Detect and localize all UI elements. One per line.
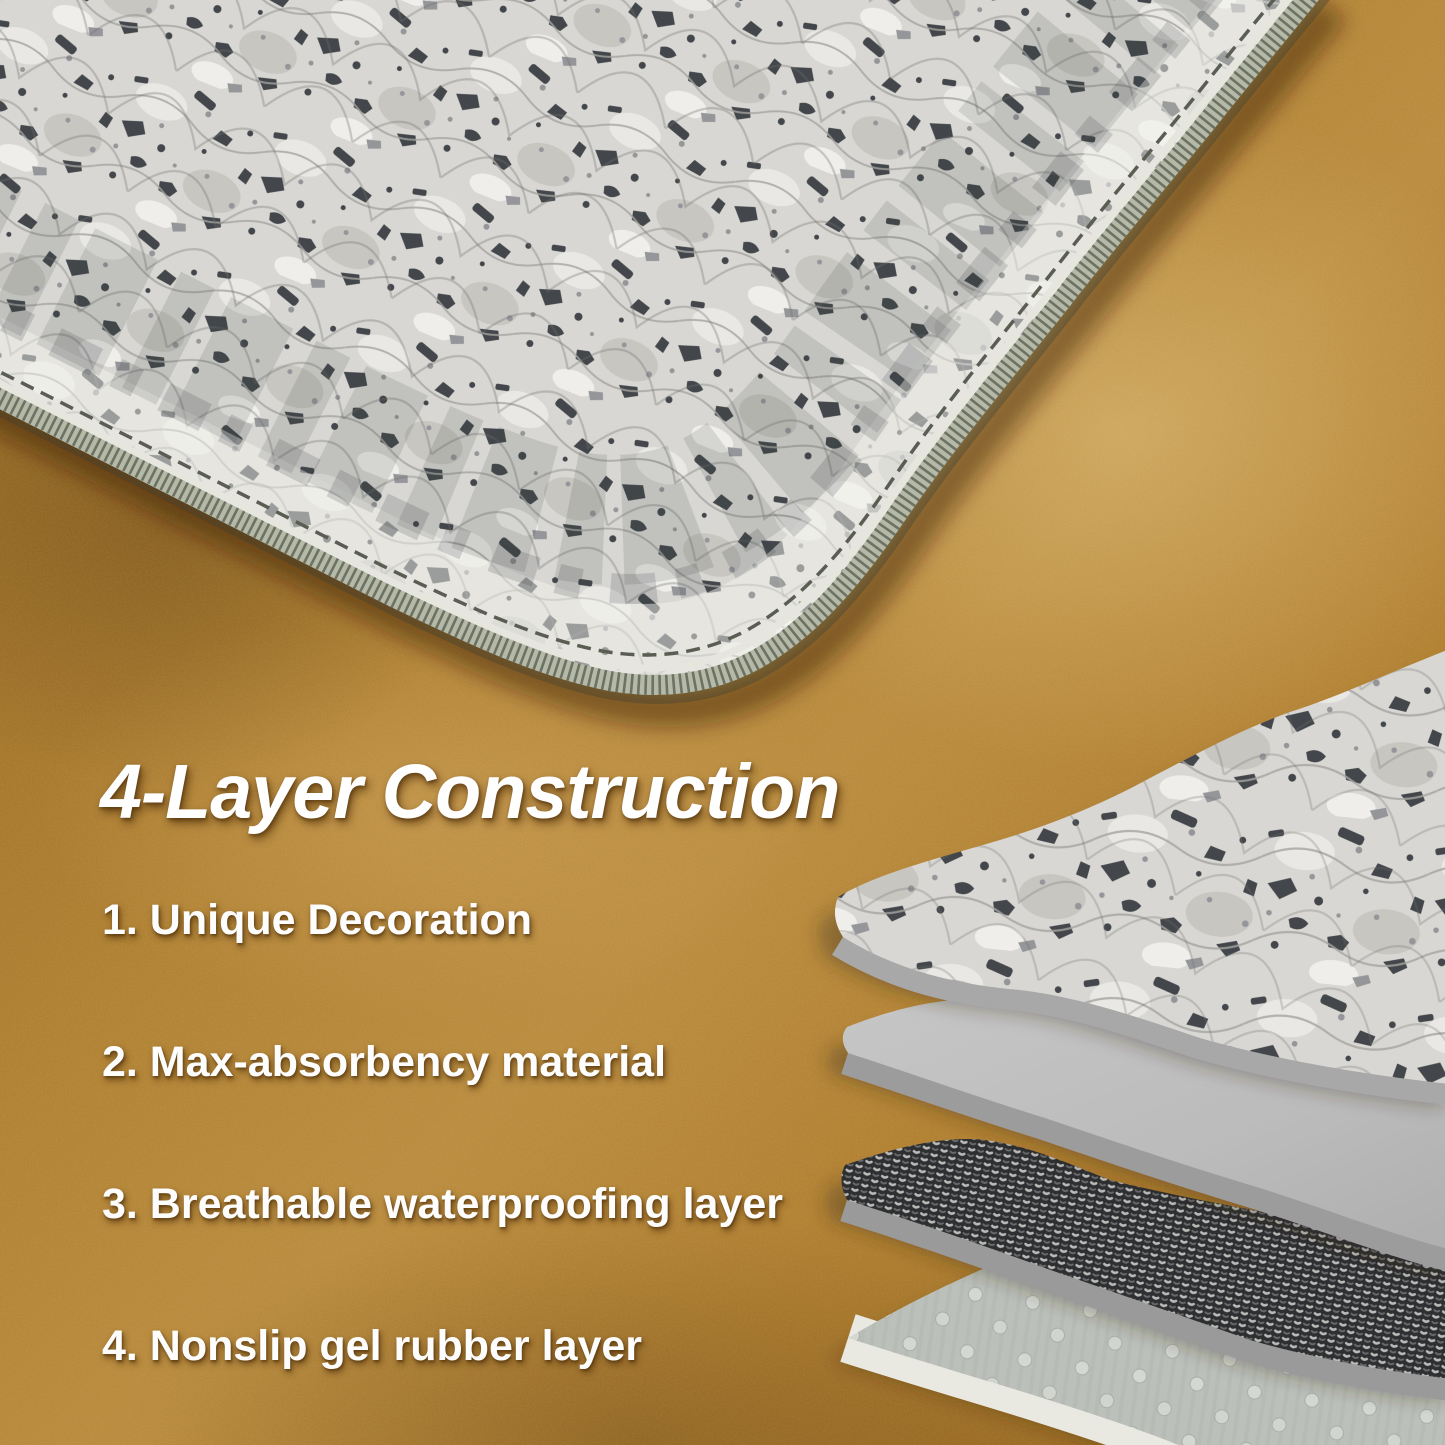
feature-item-1: 1. Unique Decoration	[102, 896, 532, 945]
feature-item-4: 4. Nonslip gel rubber layer	[102, 1322, 642, 1371]
feature-item-2: 2. Max-absorbency material	[102, 1038, 666, 1087]
headline: 4-Layer Construction	[100, 748, 839, 837]
feature-item-3: 3. Breathable waterproofing layer	[102, 1180, 783, 1229]
product-infographic: 4-Layer Construction 1. Unique Decoratio…	[0, 0, 1445, 1445]
